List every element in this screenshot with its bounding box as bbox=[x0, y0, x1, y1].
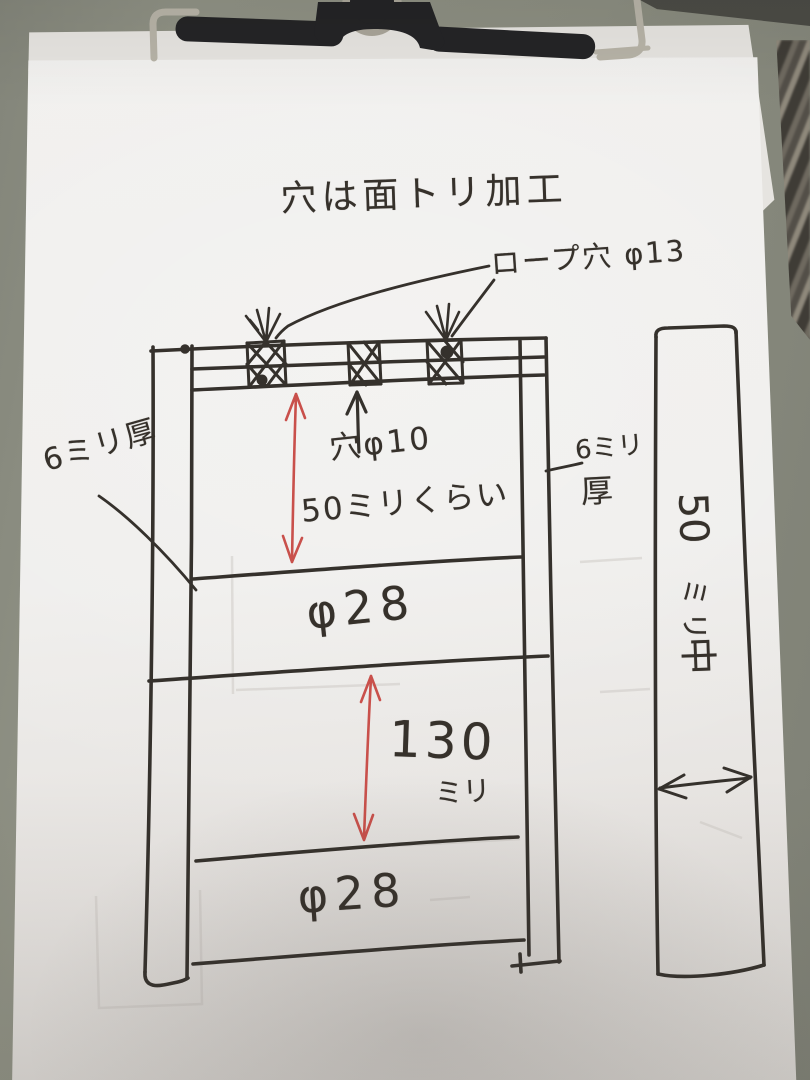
photo-scene: 穴は面トリ加工 ロープ穴 φ13 穴φ10 50ミリくらい φ28 130 ミリ… bbox=[0, 0, 810, 1080]
paper-show-through bbox=[96, 556, 742, 1008]
rung2-diameter-label: φ28 bbox=[296, 866, 409, 920]
right-thickness-line1: 6ミリ bbox=[574, 432, 645, 464]
right-thickness-line2: 厚 bbox=[580, 474, 614, 508]
sketch-title: 穴は面トリ加工 bbox=[280, 172, 568, 218]
dimension-arrow-50mm bbox=[283, 394, 305, 562]
leader-line-short bbox=[452, 280, 494, 336]
ink-dot bbox=[182, 346, 188, 352]
left-thickness-leader bbox=[99, 496, 196, 590]
rung1-diameter-label: φ28 bbox=[304, 579, 418, 636]
side-bar-width-arrow bbox=[659, 768, 751, 798]
bar-center-mark-label: 中 bbox=[678, 636, 717, 675]
spacing-unit-label: ミリ bbox=[434, 777, 491, 808]
frame-outline bbox=[99, 266, 764, 986]
dimension-arrow-130mm bbox=[354, 676, 380, 840]
leader-scribble-1 bbox=[246, 308, 280, 342]
spacing-value-label: 130 bbox=[388, 714, 497, 768]
bar-width-value-label: 50 bbox=[672, 492, 714, 544]
